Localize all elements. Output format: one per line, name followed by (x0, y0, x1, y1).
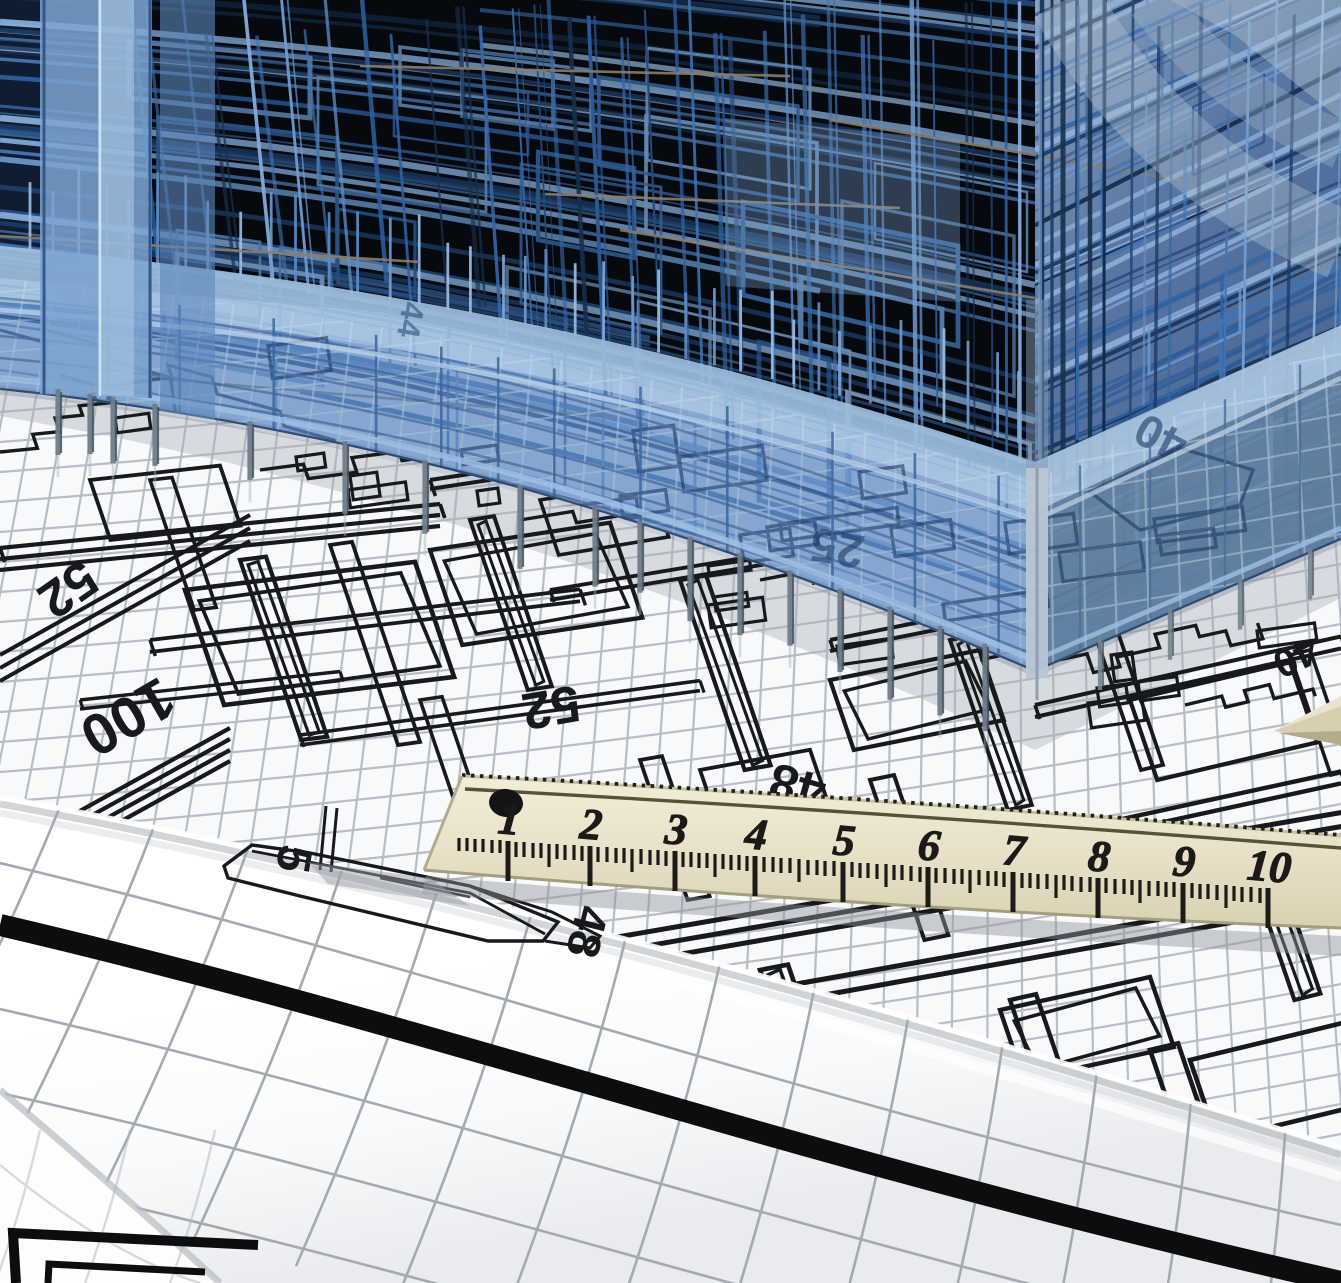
svg-text:4: 4 (742, 809, 769, 860)
svg-text:6: 6 (916, 820, 942, 871)
svg-text:52: 52 (517, 673, 584, 740)
svg-text:3: 3 (662, 804, 689, 855)
svg-text:9: 9 (1171, 836, 1197, 887)
svg-text:10: 10 (1245, 840, 1293, 893)
svg-text:5: 5 (831, 815, 857, 866)
svg-text:2: 2 (577, 799, 604, 850)
svg-text:1: 1 (496, 794, 522, 845)
svg-text:44: 44 (390, 299, 432, 341)
svg-text:25: 25 (806, 517, 868, 578)
svg-text:8: 8 (1086, 831, 1112, 882)
